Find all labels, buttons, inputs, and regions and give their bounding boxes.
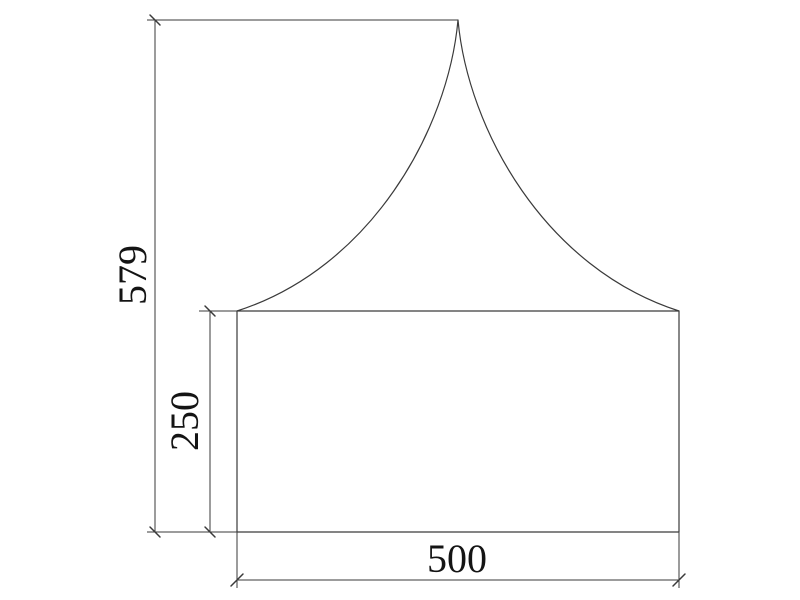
dimension-label-base-width: 500: [427, 536, 487, 581]
tent-outline-group: [237, 20, 679, 532]
dimension-labels-group: 579 250 500: [110, 245, 487, 581]
dimension-ticks-group: [150, 15, 685, 586]
drawing-canvas: 579 250 500: [0, 0, 800, 600]
tent-body-rectangle: [237, 311, 679, 532]
dimension-label-wall-height: 250: [162, 391, 207, 451]
tent-elevation-drawing: 579 250 500: [0, 0, 800, 600]
dimension-lines-group: [147, 20, 679, 588]
roof-curve: [237, 20, 679, 311]
dimension-label-overall-height: 579: [110, 245, 155, 305]
